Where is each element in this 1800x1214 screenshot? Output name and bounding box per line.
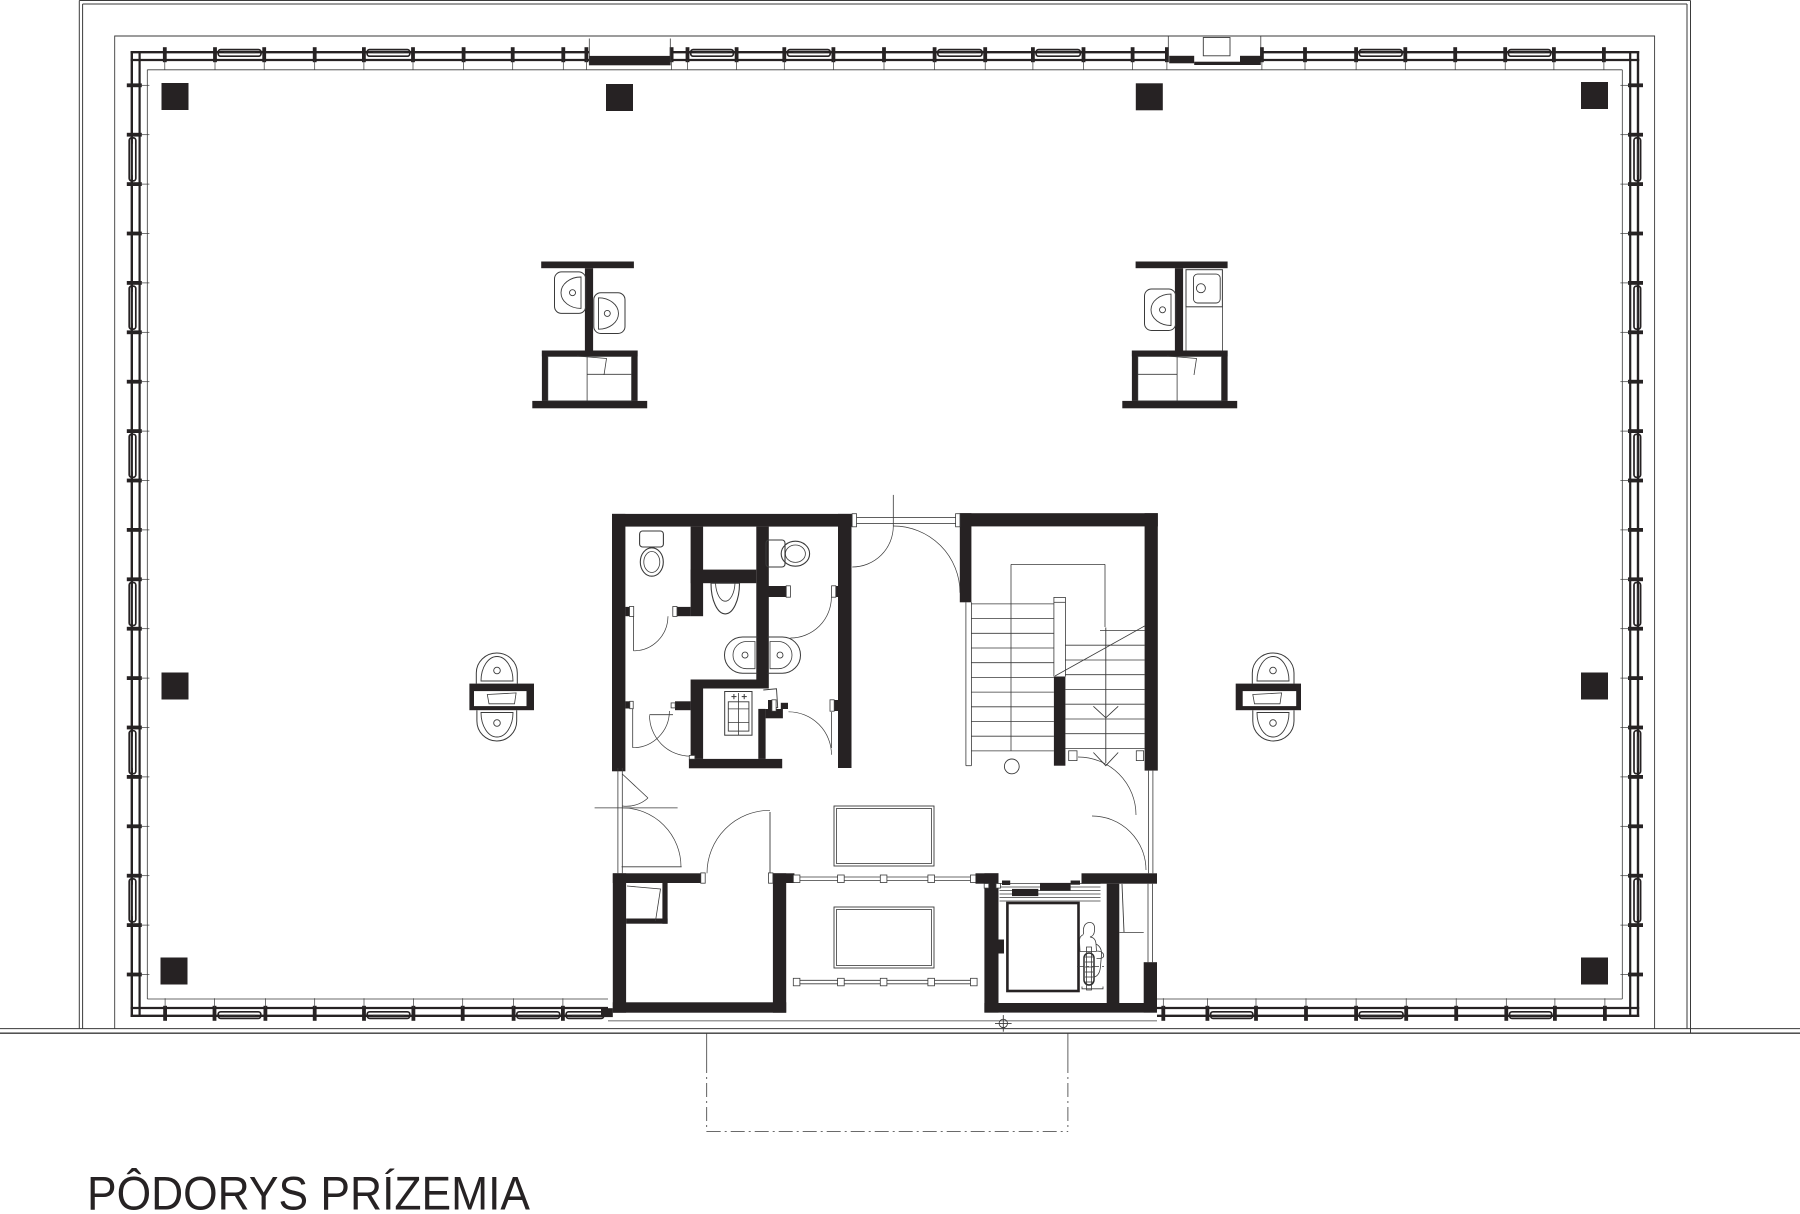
svg-text:PÔDORYS PRÍZEMIA: PÔDORYS PRÍZEMIA bbox=[87, 1167, 530, 1214]
